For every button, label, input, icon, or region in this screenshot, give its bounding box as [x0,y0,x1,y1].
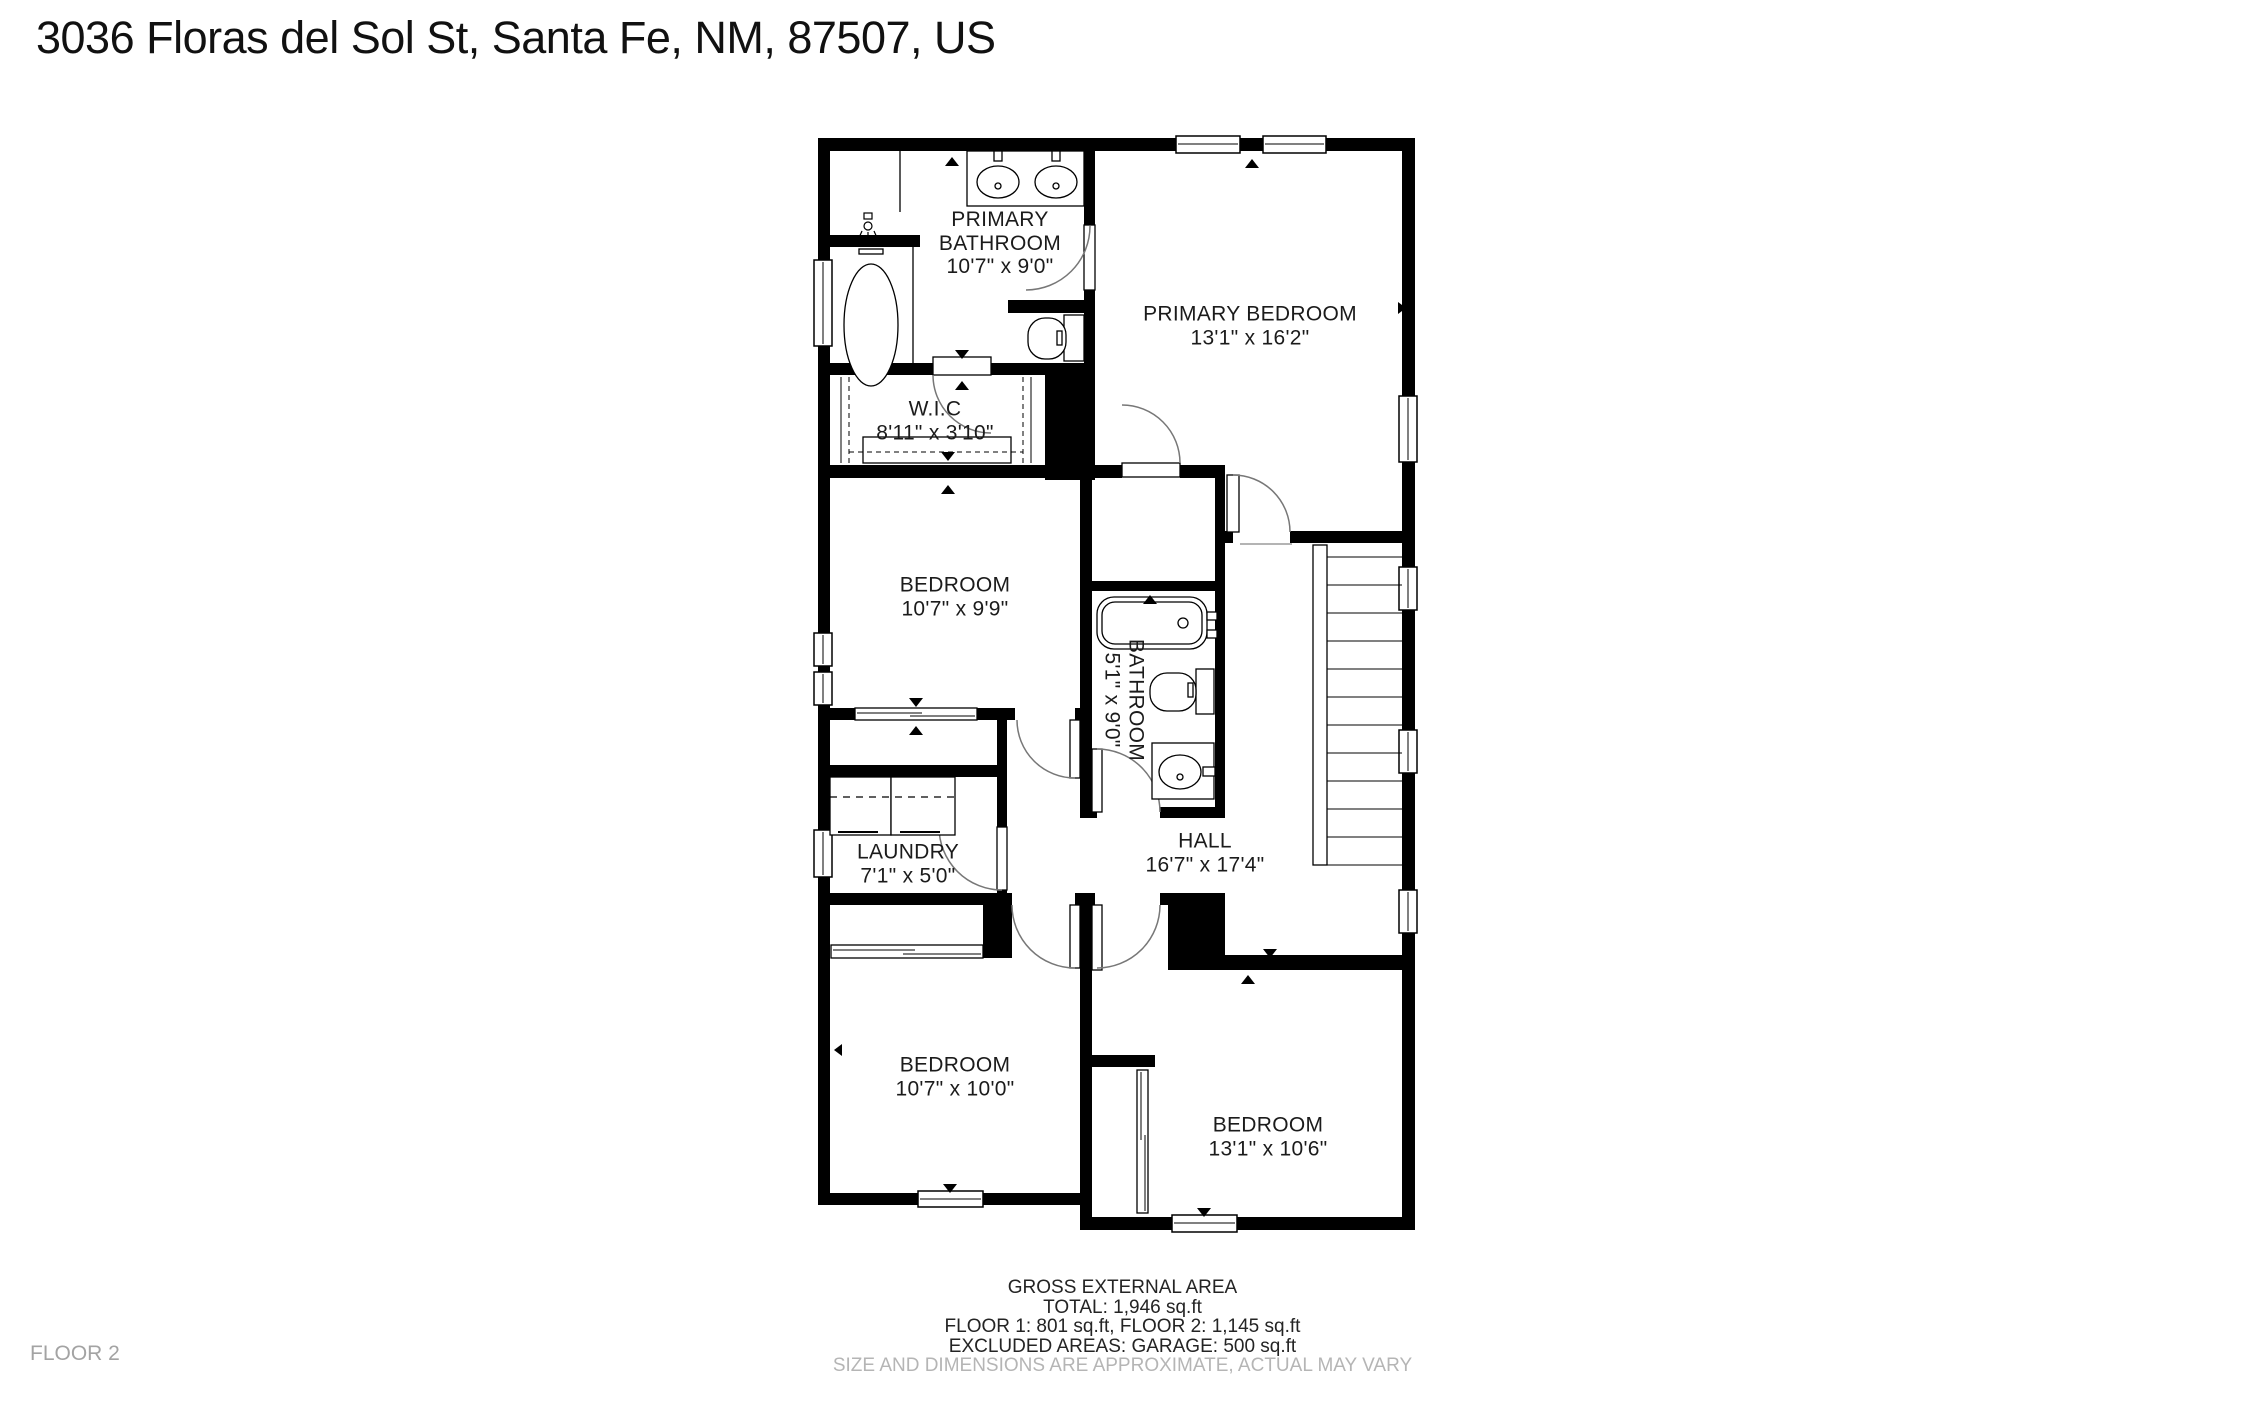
room-dims: 16'7" x 17'4" [1145,853,1264,877]
room-name: W.I.C [876,398,994,422]
bathtub-icon [844,249,898,386]
toilet-primary-icon [1028,315,1084,361]
room-dims: 8'11" x 3'10" [876,421,994,445]
area-heading: GROSS EXTERNAL AREA [833,1278,1412,1298]
room-dims: 13'1" x 16'2" [1143,326,1357,350]
room-dims: 13'1" x 10'6" [1208,1137,1327,1161]
sliding-door-br-closet [1137,1070,1148,1213]
room-dims: 10'7" x 10'0" [895,1077,1014,1101]
room-label-laundry: LAUNDRY 7'1" x 5'0" [857,841,959,888]
marker-arrow [909,698,923,707]
door-leaf-wic [933,357,991,375]
toilet-small-icon [1150,669,1214,714]
room-name: BEDROOM [1208,1114,1327,1138]
room-label-bathroom: BATHROOM 5'1" x 9'0" [1101,639,1148,761]
room-label-bedroom-middle: BEDROOM 10'7" x 9'9" [900,574,1011,621]
stairs [1313,545,1402,865]
marker-arrow [1241,975,1255,984]
door-leaf-primary-bedroom [1227,475,1239,532]
door-leaf-bedroom-bl [1070,905,1080,968]
area-total: TOTAL: 1,946 sq.ft [833,1298,1412,1318]
marker-arrow [941,485,955,494]
room-label-hall: HALL 16'7" x 17'4" [1145,830,1264,877]
area-disclaimer: SIZE AND DIMENSIONS ARE APPROXIMATE, ACT… [833,1356,1412,1376]
room-dims: 5'1" x 9'0" [1101,639,1125,761]
room-name: BEDROOM [900,574,1011,598]
stair-treads [1327,557,1402,865]
sink-small-icon [1152,743,1215,799]
marker-arrow [909,726,923,735]
window-top-left-sash [1176,136,1240,153]
window-bedroom-left-b [814,672,832,705]
door-arc-bedroom-bl [1012,905,1075,968]
door-arc-primary-closet [1122,405,1180,463]
room-dims: 10'7" x 9'9" [900,597,1011,621]
sliding-door-bl-closet [831,945,983,958]
area-excluded: EXCLUDED AREAS: GARAGE: 500 sq.ft [833,1337,1412,1357]
room-name: BATHROOM [1124,639,1148,761]
window-bedroom-bl-bottom [918,1191,983,1207]
window-laundry-left [814,830,832,877]
room-label-wic: W.I.C 8'11" x 3'10" [876,398,994,445]
door-leaf-primary-closet [1122,463,1180,477]
window-primary-bedroom-right [1399,396,1417,462]
marker-arrow [955,381,969,390]
stair-railing [1313,545,1327,865]
marker-arrow [945,157,959,166]
area-floors: FLOOR 1: 801 sq.ft, FLOOR 2: 1,145 sq.ft [833,1317,1412,1337]
door-arc-bedroom-br [1097,905,1160,968]
room-name: BEDROOM [895,1054,1014,1078]
room-label-bedroom-bottom-left: BEDROOM 10'7" x 10'0" [895,1054,1014,1101]
room-label-primary-bedroom: PRIMARY BEDROOM 13'1" x 16'2" [1143,303,1357,350]
marker-arrow [1245,159,1259,168]
area-summary: GROSS EXTERNAL AREA TOTAL: 1,946 sq.ft F… [833,1278,1412,1376]
floor-label: FLOOR 2 [30,1342,120,1366]
room-name: HALL [1145,830,1264,854]
window-stairs-right-b [1399,730,1417,773]
room-name: PRIMARY BEDROOM [1143,303,1357,327]
washer-dryer-icon [830,777,955,835]
room-label-bedroom-bottom-right: BEDROOM 13'1" x 10'6" [1208,1114,1327,1161]
window-stairs-right-a [1399,567,1417,610]
room-dims: 7'1" x 5'0" [857,864,959,888]
room-name: LAUNDRY [857,841,959,865]
floorplan-page: 3036 Floras del Sol St, Santa Fe, NM, 87… [0,0,2245,1402]
door-arc-bedroom-middle [1017,720,1075,778]
door-arc-primary-bedroom [1233,475,1290,532]
window-bath-left [814,260,832,346]
room-label-primary-bathroom: PRIMARY BATHROOM 10'7" x 9'0" [925,208,1075,279]
window-hall-right [1399,890,1417,933]
window-bedroom-left-a [814,633,832,666]
room-name: PRIMARY BATHROOM [925,208,1075,255]
door-leaf-bedroom-middle [1070,720,1080,778]
vanity-double-sink-icon [967,151,1084,206]
door-leaf-laundry [997,827,1007,890]
door-leaf-bedroom-br [1092,905,1102,970]
window-bedroom-br-bottom [1172,1215,1237,1232]
marker-arrow [834,1044,842,1056]
sliding-door-middle-closet [855,708,977,720]
room-dims: 10'7" x 9'0" [946,255,1053,278]
window-top-right-sash [1263,136,1326,153]
